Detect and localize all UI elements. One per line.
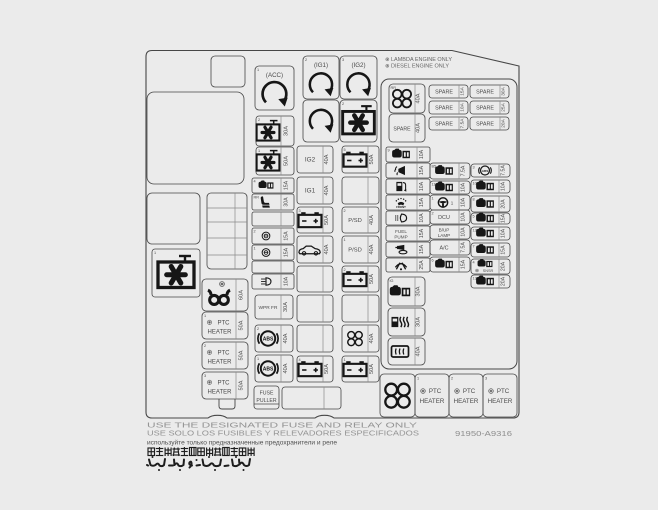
svg-text:40A: 40A	[283, 333, 289, 343]
svg-text:1: 1	[417, 377, 419, 381]
svg-text:HEATER: HEATER	[420, 398, 445, 405]
svg-text:2: 2	[305, 58, 307, 62]
svg-text:LAMBDA ENGINE ONLY: LAMBDA ENGINE ONLY	[391, 57, 453, 63]
svg-text:25A: 25A	[501, 102, 507, 111]
svg-text:1: 1	[257, 68, 259, 72]
svg-text:2: 2	[432, 212, 434, 216]
svg-text:LAMP: LAMP	[438, 233, 451, 238]
svg-text:10A: 10A	[461, 227, 467, 237]
svg-text:используйте только предназначе: используйте только предназначенные предо…	[147, 440, 338, 447]
svg-text:11: 11	[432, 183, 436, 187]
svg-text:3: 3	[342, 58, 344, 62]
svg-text:7.5A: 7.5A	[461, 165, 467, 176]
svg-text:PTC: PTC	[218, 321, 231, 327]
svg-text:ABS: ABS	[482, 169, 489, 173]
svg-text:2: 2	[342, 102, 344, 106]
svg-text:SPARE: SPARE	[435, 122, 453, 128]
svg-text:15A: 15A	[461, 259, 467, 269]
svg-text:25A: 25A	[419, 260, 425, 270]
svg-text:4: 4	[254, 180, 256, 184]
svg-text:P/SD: P/SD	[348, 218, 362, 224]
svg-text:IG1: IG1	[305, 188, 316, 195]
svg-text:HEATER: HEATER	[208, 330, 233, 336]
svg-text:10A: 10A	[461, 182, 467, 192]
svg-text:30A: 30A	[416, 317, 422, 327]
svg-text:WPR FR: WPR FR	[259, 305, 278, 311]
svg-text:10: 10	[473, 182, 477, 186]
svg-text:15A: 15A	[284, 180, 290, 190]
svg-text:A/C: A/C	[440, 246, 449, 252]
svg-text:15A: 15A	[284, 231, 290, 241]
svg-text:1: 1	[432, 197, 434, 201]
svg-text:15A: 15A	[284, 247, 290, 257]
svg-text:PTC: PTC	[497, 388, 510, 395]
svg-text:SNSR: SNSR	[483, 269, 494, 273]
svg-text:DCU: DCU	[438, 215, 450, 221]
svg-text:20A: 20A	[501, 199, 507, 209]
svg-text:10A: 10A	[419, 149, 425, 159]
svg-text:20A: 20A	[501, 276, 507, 286]
svg-text:50A: 50A	[369, 154, 375, 164]
svg-text:91950-A9316: 91950-A9316	[455, 429, 512, 438]
svg-text:FUSE: FUSE	[260, 391, 274, 397]
svg-text:40A: 40A	[369, 333, 375, 343]
svg-text:HEATER: HEATER	[208, 390, 233, 396]
svg-text:30A: 30A	[284, 126, 290, 136]
svg-text:1: 1	[344, 238, 346, 242]
svg-text:4: 4	[299, 358, 301, 362]
svg-text:13: 13	[473, 277, 477, 281]
svg-text:IG2: IG2	[305, 157, 316, 164]
svg-text:40A: 40A	[416, 346, 422, 356]
svg-text:ABS: ABS	[263, 337, 274, 343]
svg-text:2: 2	[204, 344, 206, 348]
svg-text:4: 4	[473, 261, 475, 265]
svg-text:7.5A: 7.5A	[501, 165, 507, 176]
svg-text:10A: 10A	[284, 276, 290, 286]
svg-text:40A: 40A	[369, 215, 375, 225]
svg-text:40A: 40A	[416, 123, 422, 133]
svg-text:(ACC): (ACC)	[266, 72, 283, 79]
svg-text:PTC: PTC	[429, 388, 442, 395]
svg-text:SPARE: SPARE	[476, 122, 494, 128]
svg-text:30A: 30A	[283, 302, 289, 312]
svg-text:50A: 50A	[284, 156, 290, 166]
svg-text:15A: 15A	[419, 228, 425, 238]
svg-text:40A: 40A	[369, 244, 375, 254]
svg-text:50A: 50A	[239, 350, 245, 360]
svg-text:8: 8	[473, 198, 475, 202]
svg-text:50A: 50A	[324, 364, 330, 374]
svg-text:30A: 30A	[284, 197, 290, 207]
svg-text:40A: 40A	[324, 244, 330, 254]
svg-text:SPARE: SPARE	[476, 90, 494, 96]
svg-text:DIESEL ENGINE ONLY: DIESEL ENGINE ONLY	[391, 64, 450, 70]
svg-text:50A: 50A	[324, 215, 330, 225]
svg-text:HEATER: HEATER	[488, 398, 513, 405]
svg-text:10A: 10A	[461, 197, 467, 207]
svg-text:3: 3	[485, 377, 487, 381]
svg-text:SPARE: SPARE	[435, 106, 453, 112]
svg-text:7.5A: 7.5A	[461, 242, 467, 253]
svg-text:10A: 10A	[419, 181, 425, 191]
svg-text:1: 1	[258, 149, 260, 153]
svg-text:PTC: PTC	[218, 351, 231, 357]
svg-text:7: 7	[473, 245, 475, 249]
svg-text:15A: 15A	[419, 197, 425, 207]
svg-text:20A: 20A	[501, 118, 507, 127]
svg-text:1: 1	[254, 247, 256, 251]
svg-text:SPARE: SPARE	[393, 127, 411, 133]
svg-text:3: 3	[473, 166, 475, 170]
svg-text:IG: IG	[390, 279, 394, 283]
svg-text:1: 1	[257, 357, 259, 361]
svg-text:PULLER: PULLER	[256, 398, 276, 404]
svg-text:5: 5	[344, 148, 346, 152]
svg-text:15A: 15A	[419, 165, 425, 175]
svg-text:50A: 50A	[239, 380, 245, 390]
svg-text:HEATER: HEATER	[454, 398, 479, 405]
svg-text:60A: 60A	[239, 290, 245, 300]
svg-text:50A: 50A	[239, 320, 245, 330]
svg-text:50A: 50A	[369, 274, 375, 284]
svg-text:50A: 50A	[369, 364, 375, 374]
svg-text:15A: 15A	[501, 245, 507, 255]
svg-text:USE SOLO LOS FUSIBLES Y RELEVA: USE SOLO LOS FUSIBLES Y RELEVADORES ESPE…	[147, 429, 419, 438]
svg-text:10A: 10A	[501, 228, 507, 238]
svg-text:HEATER: HEATER	[208, 360, 233, 366]
svg-text:2: 2	[451, 377, 453, 381]
svg-text:RR: RR	[254, 196, 260, 200]
svg-text:10A: 10A	[460, 102, 466, 111]
svg-text:15A: 15A	[460, 86, 466, 95]
svg-text:2: 2	[258, 118, 260, 122]
svg-text:10A: 10A	[461, 212, 467, 222]
svg-text:40A: 40A	[283, 363, 289, 373]
svg-text:1: 1	[204, 314, 206, 318]
svg-text:5: 5	[473, 215, 475, 219]
svg-text:30A: 30A	[416, 286, 422, 296]
svg-text:15A: 15A	[419, 244, 425, 254]
svg-text:40A: 40A	[324, 154, 330, 164]
svg-text:B/UP: B/UP	[439, 228, 450, 233]
svg-text:40A: 40A	[416, 93, 422, 103]
svg-text:(IG1): (IG1)	[314, 62, 328, 69]
svg-text:2: 2	[254, 230, 256, 234]
svg-text:10A: 10A	[419, 213, 425, 223]
svg-text:20A: 20A	[501, 261, 507, 271]
svg-text:12: 12	[473, 229, 477, 233]
svg-text:2: 2	[257, 327, 259, 331]
svg-text:(IG2): (IG2)	[351, 62, 365, 69]
svg-text:6: 6	[432, 259, 434, 263]
svg-text:9: 9	[388, 149, 390, 153]
svg-text:PTC: PTC	[463, 388, 476, 395]
svg-text:FUEL: FUEL	[395, 229, 407, 234]
svg-text:PUMP: PUMP	[394, 235, 407, 240]
svg-text:ABS: ABS	[263, 367, 274, 373]
svg-text:FRONT: FRONT	[396, 205, 406, 209]
svg-text:1: 1	[344, 358, 346, 362]
svg-text:15A: 15A	[501, 213, 507, 223]
svg-text:SPARE: SPARE	[476, 106, 494, 112]
svg-text:40A: 40A	[324, 185, 330, 195]
svg-text:PTC: PTC	[218, 381, 231, 387]
svg-text:7.5A: 7.5A	[460, 118, 466, 129]
svg-text:1: 1	[154, 251, 156, 255]
svg-text:2: 2	[344, 209, 346, 213]
svg-text:P/SD: P/SD	[348, 248, 362, 254]
svg-text:2: 2	[344, 268, 346, 272]
svg-text:30A: 30A	[501, 86, 507, 95]
svg-text:10A: 10A	[501, 181, 507, 191]
svg-text:3: 3	[299, 209, 301, 213]
svg-text:SPARE: SPARE	[435, 90, 453, 96]
svg-text:3: 3	[204, 374, 206, 378]
